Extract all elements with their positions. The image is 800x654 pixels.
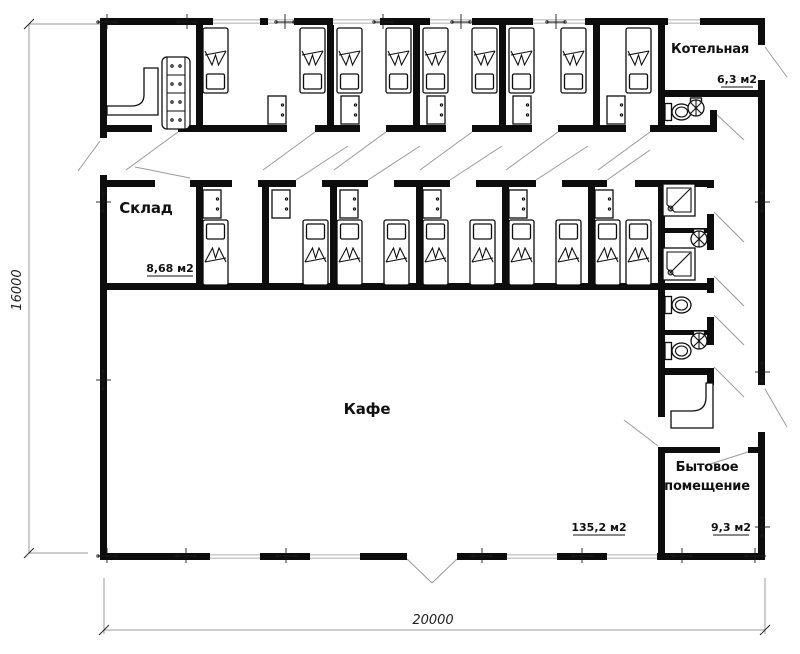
toilet-icon bbox=[665, 104, 691, 121]
floor-plan-drawing: 16000 20000 bbox=[0, 0, 800, 654]
bed-icon bbox=[384, 220, 409, 285]
bed-icon bbox=[337, 28, 362, 93]
bed-icon bbox=[303, 220, 328, 285]
bedroom-beds-middle bbox=[203, 220, 651, 285]
reception-desk-icon bbox=[107, 68, 158, 115]
dimension-width-label: 20000 bbox=[412, 613, 453, 628]
cabinet-icon bbox=[341, 96, 359, 124]
bed-icon bbox=[626, 220, 651, 285]
bedroom-beds-top bbox=[203, 28, 651, 93]
cabinet-icon bbox=[509, 190, 527, 218]
bed-icon bbox=[509, 28, 534, 93]
bed-icon bbox=[423, 28, 448, 93]
bed-icon bbox=[509, 220, 534, 285]
cabinet-icon bbox=[268, 96, 286, 124]
sink-icon bbox=[691, 229, 707, 247]
bed-icon bbox=[203, 28, 228, 93]
sink-icon bbox=[688, 98, 704, 116]
cabinet-icon bbox=[423, 190, 441, 218]
boiler-room-area: 6,3 м2 bbox=[717, 73, 757, 86]
dimension-height-label: 16000 bbox=[10, 269, 25, 310]
utility-room-area: 9,3 м2 bbox=[711, 521, 751, 534]
bed-icon bbox=[470, 220, 495, 285]
bed-icon bbox=[556, 220, 581, 285]
bed-icon bbox=[472, 28, 497, 93]
bed-icon bbox=[203, 220, 228, 285]
bed-icon bbox=[423, 220, 448, 285]
bed-icon bbox=[595, 220, 620, 285]
boiler-room-label: Котельная bbox=[671, 42, 749, 57]
cafe-room-area: 135,2 м2 bbox=[571, 521, 626, 534]
toilet-icon bbox=[665, 297, 691, 314]
bed-icon bbox=[386, 28, 411, 93]
cabinet-icon bbox=[607, 96, 625, 124]
bed-icon bbox=[337, 220, 362, 285]
sanitary-fixtures bbox=[663, 98, 713, 428]
cabinet-icon bbox=[203, 190, 221, 218]
cabinet-icon bbox=[427, 96, 445, 124]
utility-counter-icon bbox=[671, 383, 713, 428]
bed-icon bbox=[626, 28, 651, 93]
shower-icon bbox=[663, 184, 695, 216]
cabinet-icon bbox=[340, 190, 358, 218]
cabinet-icon bbox=[595, 190, 613, 218]
utility-room-label-line2: помещение bbox=[664, 479, 750, 494]
storage-room-label: Склад bbox=[119, 199, 172, 217]
bed-icon bbox=[300, 28, 325, 93]
sink-icon bbox=[691, 331, 707, 349]
utility-room-label-line1: Бытовое bbox=[676, 460, 739, 475]
cabinet-icon bbox=[272, 190, 290, 218]
cafe-room-label: Кафе bbox=[344, 400, 391, 418]
shower-icon bbox=[663, 248, 695, 280]
toilet-icon bbox=[665, 343, 691, 360]
cabinet-icon bbox=[513, 96, 531, 124]
storage-room-area: 8,68 м2 bbox=[146, 262, 194, 275]
sofa-icon bbox=[162, 57, 190, 129]
bed-icon bbox=[561, 28, 586, 93]
